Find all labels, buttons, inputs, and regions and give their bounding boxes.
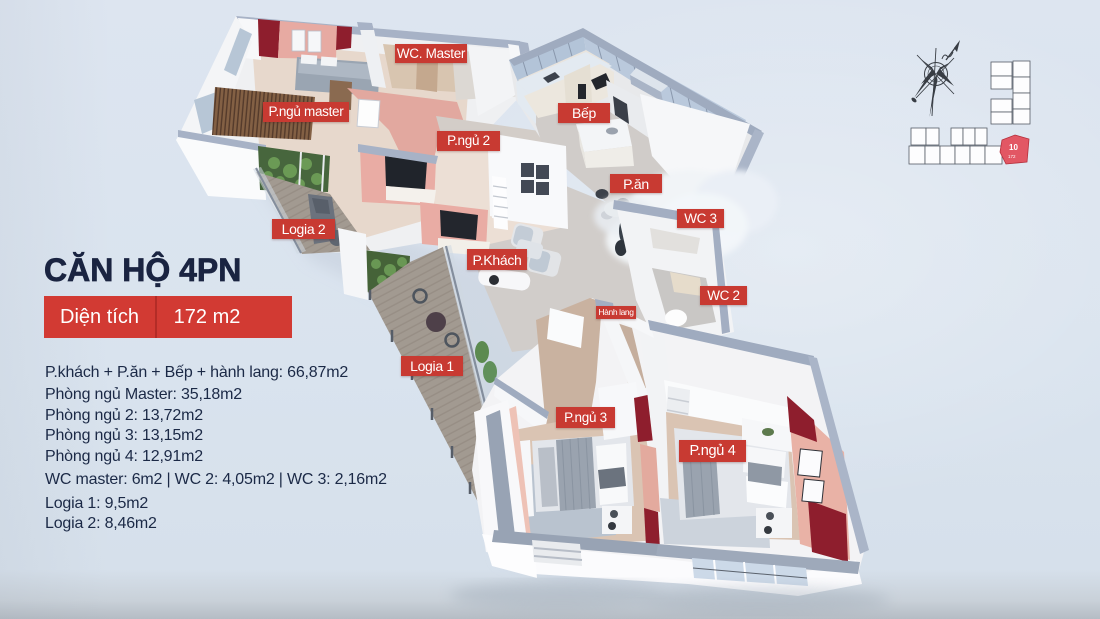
svg-text:10: 10 — [1009, 143, 1018, 152]
svg-text:172: 172 — [1008, 154, 1016, 159]
